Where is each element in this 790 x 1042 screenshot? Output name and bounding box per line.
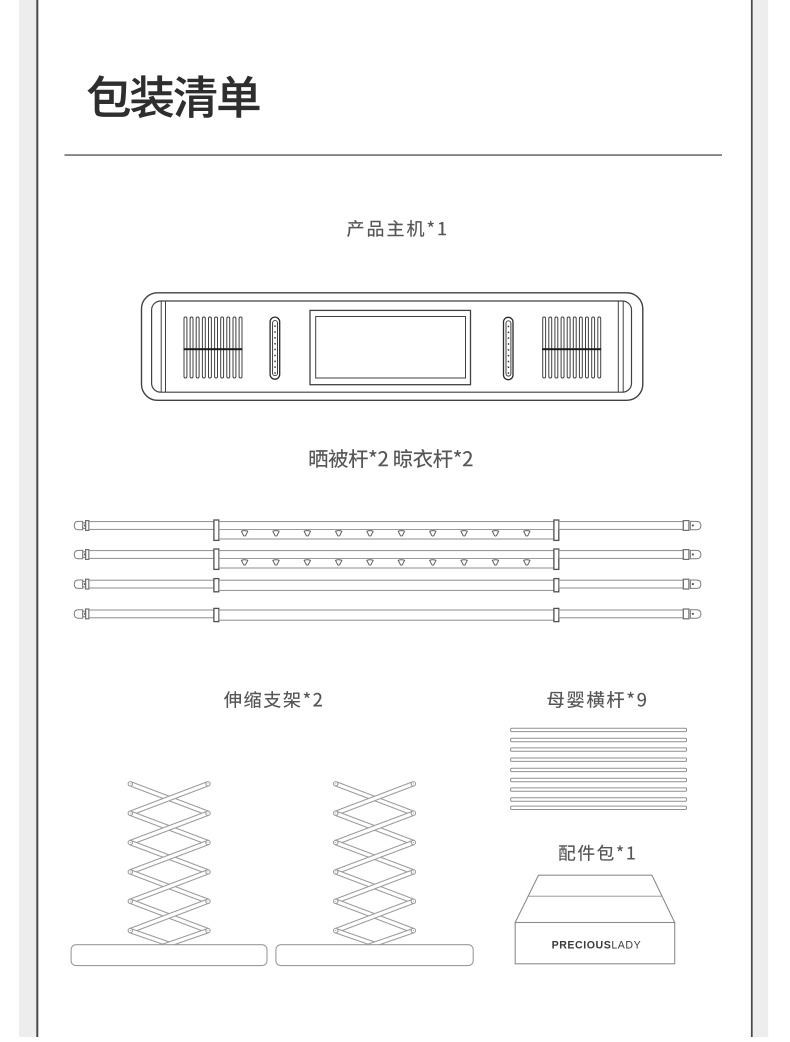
svg-text:PRECIOUSLADY: PRECIOUSLADY [552,940,642,952]
